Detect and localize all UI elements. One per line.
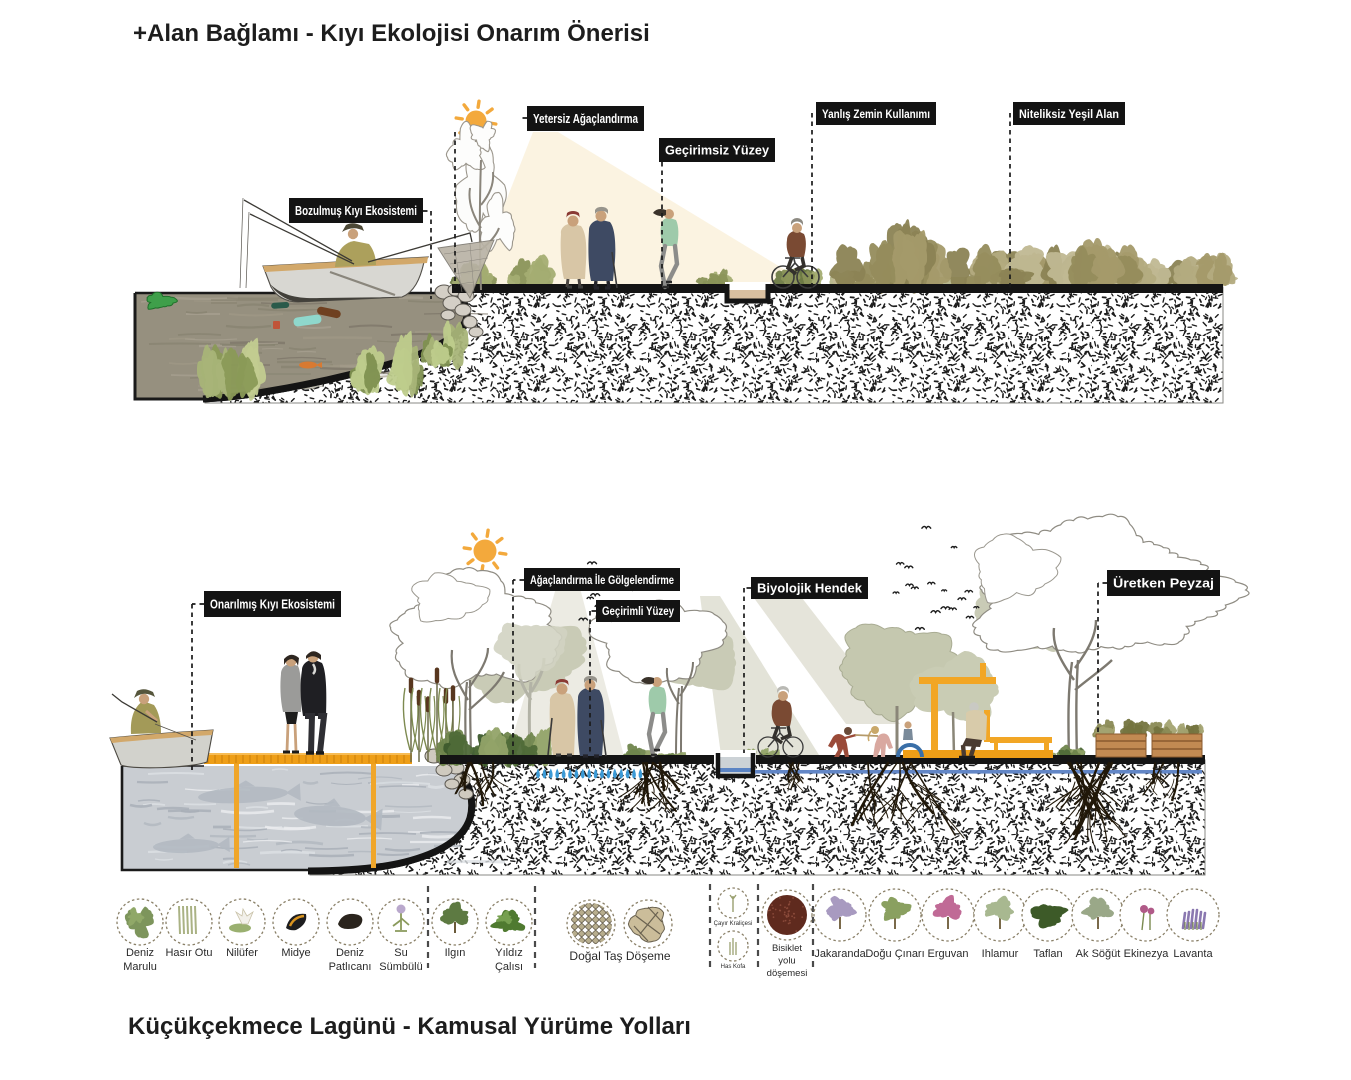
svg-text:Biyolojik Hendek: Biyolojik Hendek [757, 582, 862, 596]
svg-text:Erguvan: Erguvan [928, 948, 969, 960]
svg-text:Nilüfer: Nilüfer [226, 947, 258, 959]
svg-text:Yetersiz Ağaçlandırma: Yetersiz Ağaçlandırma [533, 112, 639, 126]
svg-text:+Alan Bağlamı - Kıyı Ekolojisi: +Alan Bağlamı - Kıyı Ekolojisi Onarım Ön… [133, 20, 650, 47]
svg-text:Lavanta: Lavanta [1173, 948, 1213, 960]
svg-text:Geçirimsiz Yüzey: Geçirimsiz Yüzey [665, 144, 769, 158]
svg-text:Yanlış Zemin Kullanımı: Yanlış Zemin Kullanımı [822, 107, 930, 121]
svg-text:Ak Söğüt: Ak Söğüt [1076, 948, 1121, 960]
svg-text:Has Kofa: Has Kofa [721, 964, 746, 970]
svg-text:Bisiklet: Bisiklet [772, 943, 802, 954]
svg-text:Midye: Midye [281, 947, 310, 959]
svg-text:Su: Su [394, 947, 407, 959]
svg-text:Geçirimli Yüzey: Geçirimli Yüzey [602, 606, 674, 618]
svg-text:Marulu: Marulu [123, 961, 157, 973]
svg-text:Yıldız: Yıldız [495, 947, 523, 959]
svg-text:Taflan: Taflan [1033, 948, 1062, 960]
svg-text:yolu: yolu [778, 956, 795, 967]
svg-text:Onarılmış Kıyı Ekosistemi: Onarılmış Kıyı Ekosistemi [210, 598, 335, 612]
svg-text:Çalısı: Çalısı [495, 961, 523, 973]
svg-text:Doğu Çınarı: Doğu Çınarı [865, 948, 924, 960]
svg-text:Küçükçekmece Lagünü - Kamusal: Küçükçekmece Lagünü - Kamusal Yürüme Yol… [128, 1013, 691, 1040]
svg-text:Ihlamur: Ihlamur [982, 948, 1019, 960]
svg-text:Deniz: Deniz [336, 947, 364, 959]
svg-text:Hasır Otu: Hasır Otu [165, 947, 212, 959]
svg-text:Sümbülü: Sümbülü [379, 961, 422, 973]
svg-text:döşemesi: döşemesi [767, 968, 808, 979]
svg-text:Üretken Peyzaj: Üretken Peyzaj [1113, 576, 1214, 591]
svg-text:Çayır Kraliçesi: Çayır Kraliçesi [714, 921, 753, 927]
svg-text:Ekinezya: Ekinezya [1124, 948, 1170, 960]
svg-text:Bozulmuş Kıyı Ekosistemi: Bozulmuş Kıyı Ekosistemi [295, 204, 417, 218]
svg-text:Ilgın: Ilgın [445, 947, 466, 959]
svg-text:Doğal Taş Döşeme: Doğal Taş Döşeme [569, 949, 670, 963]
svg-text:Niteliksiz Yeşil Alan: Niteliksiz Yeşil Alan [1019, 107, 1119, 121]
svg-text:Jakaranda: Jakaranda [814, 948, 866, 960]
svg-text:Patlıcanı: Patlıcanı [329, 961, 372, 973]
svg-text:Ağaçlandırma İle Gölgelendirme: Ağaçlandırma İle Gölgelendirme [530, 572, 674, 587]
svg-text:Deniz: Deniz [126, 947, 154, 959]
